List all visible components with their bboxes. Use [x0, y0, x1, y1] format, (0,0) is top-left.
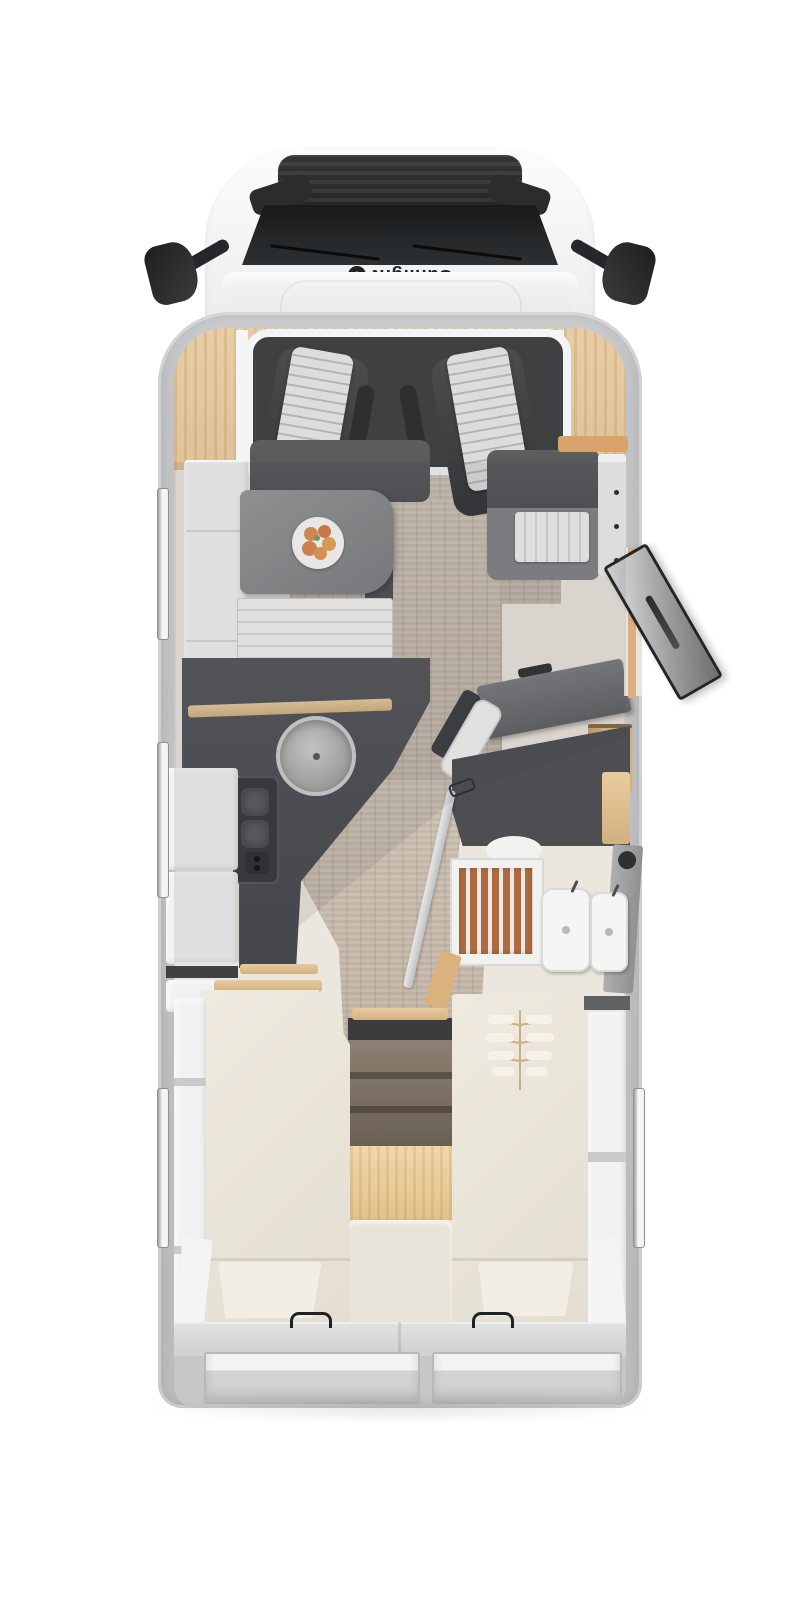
stove [233, 776, 279, 884]
washbasin-hole [618, 851, 637, 870]
toilet-lid [541, 888, 591, 972]
shower-tray [450, 858, 544, 966]
left-cabinet-seam [174, 1078, 206, 1086]
bed-lift-handle-right [472, 1312, 514, 1328]
dinette-table [240, 490, 394, 594]
stove-knob-panel [245, 852, 269, 874]
lid-button [605, 928, 613, 936]
step-edge [348, 1072, 452, 1079]
cabinet-gap [166, 966, 238, 978]
deck-seam [398, 1322, 401, 1356]
window-left-lounge [157, 488, 169, 640]
bed-step-cream [348, 1220, 452, 1322]
wiper-left-icon [270, 244, 380, 260]
bed-lift-handle-left [290, 1312, 332, 1328]
right-bed-seam [452, 1258, 588, 1261]
fruit [314, 547, 327, 560]
fruit-leaf [314, 535, 320, 541]
entry-door-handle [645, 595, 681, 650]
right-bed-pillow [474, 1262, 578, 1316]
kitchen-cabinet-2 [166, 872, 238, 964]
washbasin-lid [590, 892, 628, 972]
wiper-right-icon [412, 244, 522, 260]
shower-wood-grate [459, 868, 533, 954]
left-bed-seam [200, 1258, 350, 1261]
kitchen-sink [276, 716, 356, 796]
window-left-bedroom [157, 1088, 169, 1248]
window-right-bedroom [633, 1088, 645, 1248]
overhead-wood-shelf [558, 436, 628, 452]
right-shelf-shadow [584, 996, 630, 1010]
sink-drain [313, 753, 320, 760]
bed-step-wood [350, 1146, 452, 1220]
burner-2 [241, 820, 269, 848]
window-left-kitchen [157, 742, 169, 898]
fruit-plate [292, 517, 344, 569]
stove-knob [254, 865, 260, 871]
door-hinge [614, 524, 619, 529]
burner-1 [241, 788, 269, 816]
vehicle-shadow [140, 1396, 660, 1422]
windshield [242, 205, 558, 265]
side-bench-cushion [515, 512, 589, 562]
step-threshold-wood [352, 1008, 448, 1020]
stove-knob [254, 856, 260, 862]
bathroom-wood-cabinet [602, 772, 630, 844]
door-hinge [614, 558, 619, 563]
side-mirror-right [597, 238, 658, 308]
left-bed-pillow [214, 1262, 326, 1318]
lid-button [562, 926, 570, 934]
plant-decor-icon [470, 1005, 570, 1095]
kitchen-cabinet-1 [166, 768, 238, 870]
floor-threshold [240, 964, 318, 974]
roof-vent-grille [278, 155, 522, 211]
door-hinge [614, 490, 619, 495]
right-cabinet-seam [588, 1152, 626, 1162]
side-mirror-left [141, 238, 202, 308]
step-edge [348, 1106, 452, 1113]
left-bench-seam-1 [186, 530, 246, 532]
drainer-cover [237, 598, 393, 662]
side-bench-right-back [487, 450, 600, 508]
bed-steps-upper [348, 1040, 452, 1146]
motorhome-floorplan: Sunlight ✳ [0, 0, 800, 1600]
